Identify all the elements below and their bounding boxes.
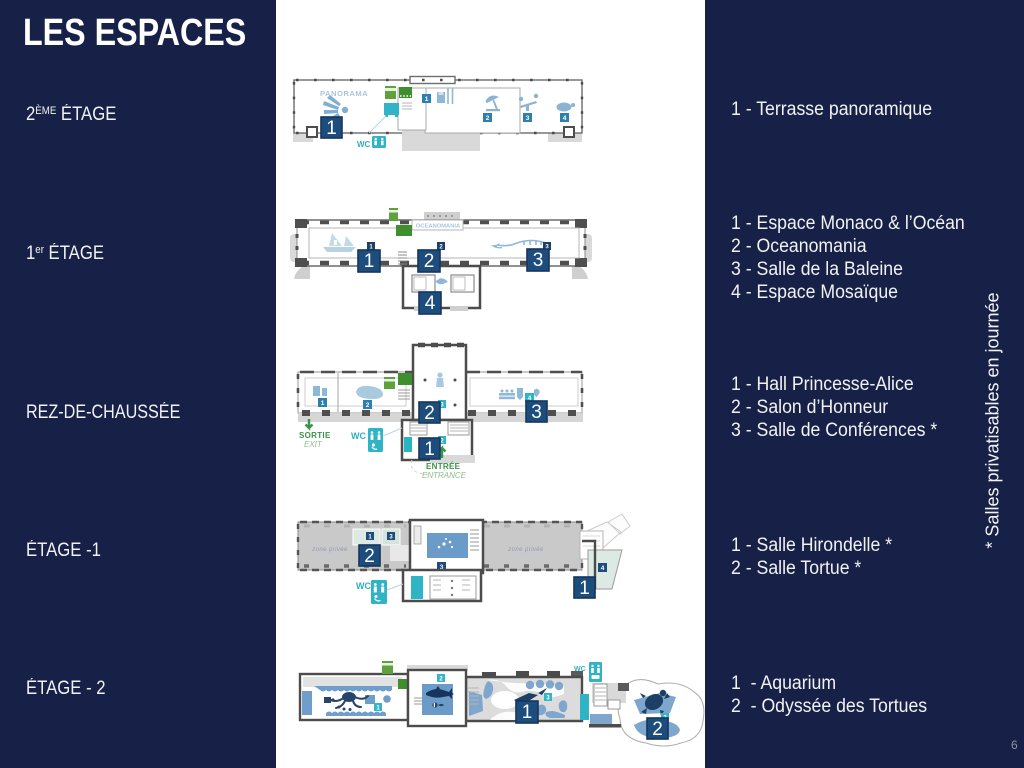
svg-text:2: 2 <box>364 546 375 567</box>
svg-text:zone privée: zone privée <box>507 547 544 553</box>
svg-text:2: 2 <box>366 402 370 409</box>
svg-text:SORTIE: SORTIE <box>299 431 331 440</box>
svg-text:2: 2 <box>424 251 435 272</box>
svg-text:ENTRANCE: ENTRANCE <box>422 471 467 480</box>
svg-text:2: 2 <box>652 719 663 740</box>
svg-text:WC: WC <box>357 140 371 149</box>
svg-text:WC: WC <box>574 666 586 673</box>
svg-text:1: 1 <box>579 578 590 599</box>
svg-text:WC: WC <box>351 431 366 441</box>
svg-text:ENTRÉE: ENTRÉE <box>426 462 461 471</box>
svg-text:3: 3 <box>526 115 530 122</box>
svg-text:3: 3 <box>531 402 542 423</box>
svg-text:1: 1 <box>321 400 325 407</box>
svg-text:EXIT: EXIT <box>304 440 323 449</box>
svg-text:4: 4 <box>563 115 567 122</box>
svg-text:2: 2 <box>486 115 490 122</box>
svg-text:PANORAMA: PANORAMA <box>320 89 368 98</box>
svg-text:2: 2 <box>424 403 435 424</box>
svg-text:1: 1 <box>522 702 533 723</box>
svg-text:4: 4 <box>425 293 436 314</box>
svg-text:1: 1 <box>425 96 429 103</box>
svg-text:zone privée: zone privée <box>311 547 348 553</box>
svg-text:4: 4 <box>601 565 605 572</box>
svg-text:1: 1 <box>326 118 337 139</box>
svg-text:1: 1 <box>424 439 435 460</box>
svg-text:OCEANOMANIA: OCEANOMANIA <box>416 224 461 230</box>
svg-text:1: 1 <box>364 251 375 272</box>
svg-text:WC: WC <box>356 581 371 591</box>
svg-text:3: 3 <box>533 250 544 271</box>
